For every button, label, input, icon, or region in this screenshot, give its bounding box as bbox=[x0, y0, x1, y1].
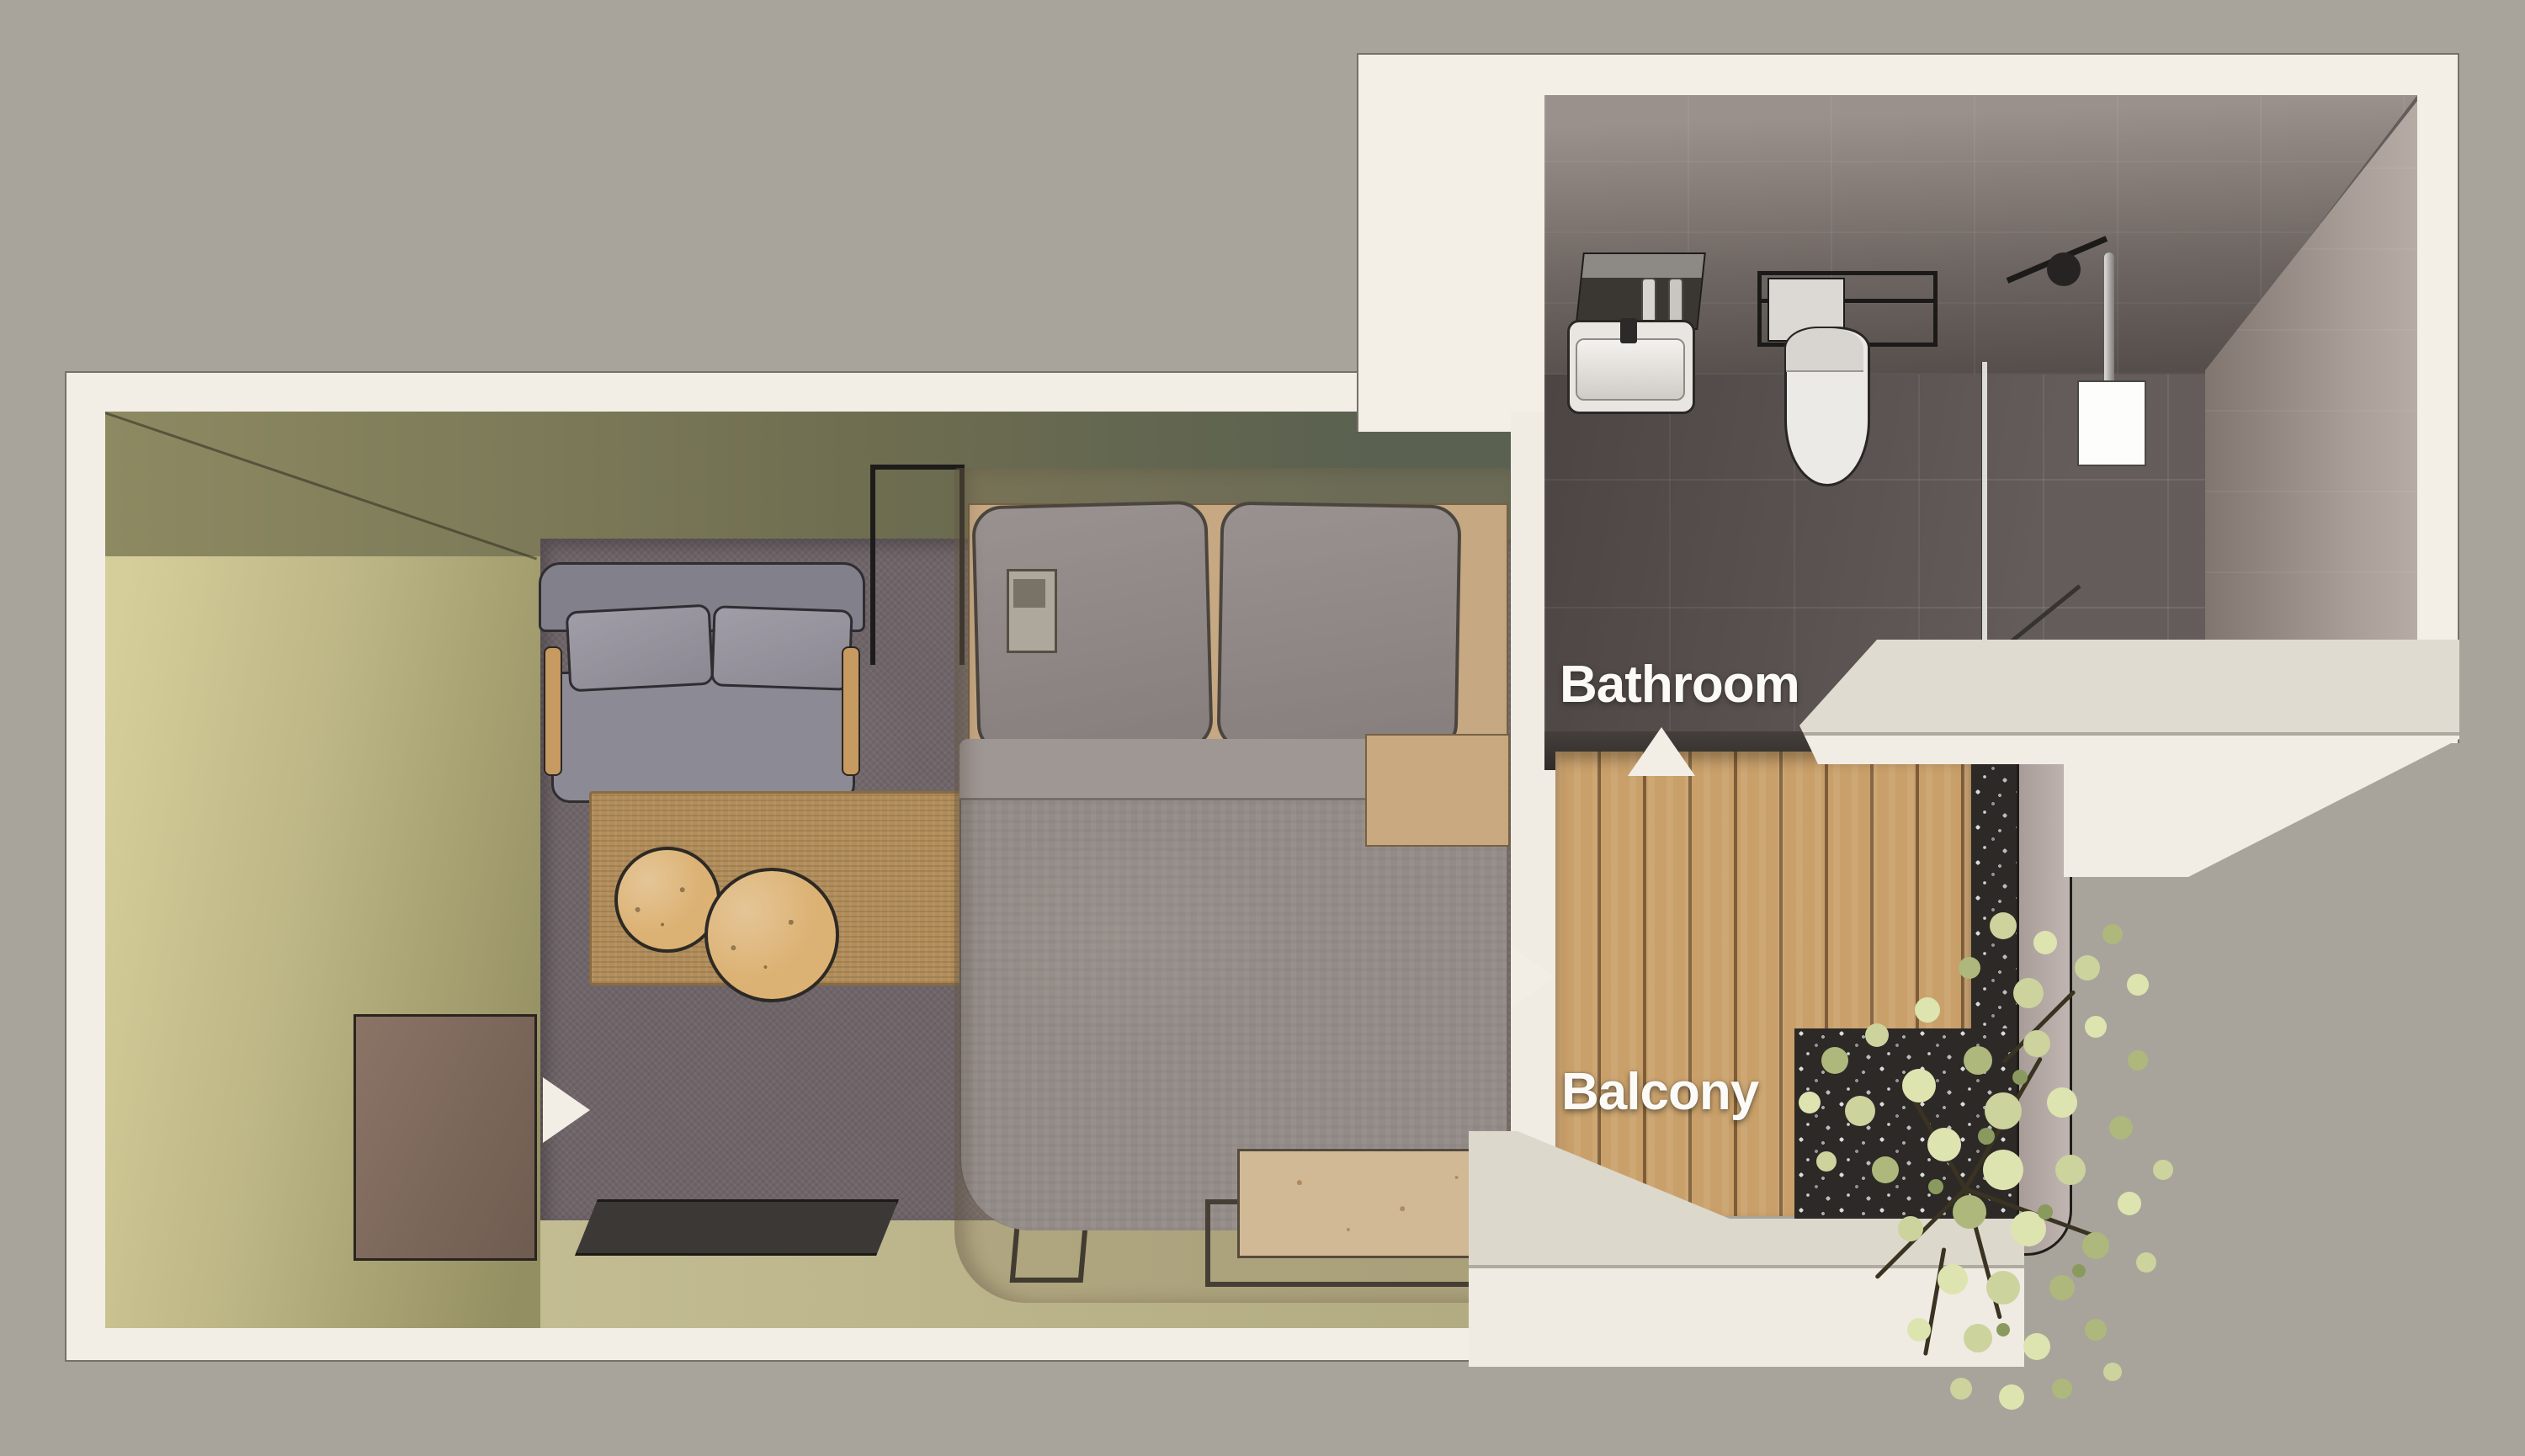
plant-leaf-cluster bbox=[2103, 1363, 2122, 1381]
doormat bbox=[575, 1199, 899, 1256]
plant-leaf-cluster bbox=[2085, 1319, 2107, 1341]
plant-leaf-cluster bbox=[2023, 1030, 2050, 1057]
plant-leaf-cluster bbox=[2085, 1016, 2107, 1038]
vanity-mirror-shelf bbox=[1575, 252, 1706, 330]
plant-leaf-cluster bbox=[1983, 1150, 2023, 1190]
plant-leaf-cluster bbox=[2055, 1155, 2086, 1185]
plant-leaf-cluster bbox=[1821, 1047, 1848, 1074]
sofa-armrest-right bbox=[842, 646, 860, 776]
plant-leaf-cluster bbox=[1990, 912, 2017, 939]
shower-niche bbox=[2077, 380, 2146, 466]
plant-leaf-cluster bbox=[2013, 978, 2044, 1008]
plant-leaf-cluster bbox=[1978, 1128, 1995, 1145]
plant-leaf-cluster bbox=[1845, 1096, 1875, 1126]
plant-leaf-cluster bbox=[1985, 1092, 2022, 1129]
plant-leaf-cluster bbox=[1964, 1324, 1992, 1352]
shower-head bbox=[2047, 252, 2081, 286]
balcony-tree-plant bbox=[1751, 892, 2188, 1431]
plant-leaf-cluster bbox=[2012, 1070, 2028, 1085]
plant-leaf-cluster bbox=[2127, 974, 2149, 996]
sofa-armrest-left bbox=[544, 646, 562, 776]
plant-leaf-cluster bbox=[1986, 1271, 2020, 1305]
plant-leaf-cluster bbox=[1799, 1092, 1821, 1113]
shower-glass-panel bbox=[1981, 362, 1987, 658]
plant-leaf-cluster bbox=[1865, 1023, 1889, 1047]
plant-leaf-cluster bbox=[2049, 1275, 2075, 1300]
slab-crease-line bbox=[1799, 732, 2461, 736]
plant-leaf-cluster bbox=[1964, 1046, 1992, 1075]
sofa-cushion-left bbox=[566, 604, 715, 693]
balcony-label: Balcony bbox=[1561, 1062, 1758, 1122]
sofa-cushion-right bbox=[710, 605, 853, 691]
plant-leaf-cluster bbox=[1938, 1264, 1968, 1294]
glass-partition-frame bbox=[870, 465, 875, 665]
plant-leaf-cluster bbox=[1898, 1216, 1923, 1241]
plant-leaf-cluster bbox=[1959, 957, 1980, 979]
plant-leaf-cluster bbox=[2128, 1050, 2148, 1071]
floorplan-scene: Bathroom Balcony bbox=[0, 0, 2525, 1456]
plant-leaf-cluster bbox=[2075, 955, 2100, 980]
plant-leaf-cluster bbox=[2109, 1116, 2133, 1140]
toiletry-bottle bbox=[1668, 278, 1683, 325]
sofa-seat bbox=[551, 672, 855, 803]
plant-leaf-cluster bbox=[2023, 1333, 2050, 1360]
toiletry-bottle bbox=[1641, 278, 1656, 325]
plant-leaf-cluster bbox=[2052, 1379, 2072, 1399]
bathroom-label: Bathroom bbox=[1560, 655, 1799, 715]
plant-leaf-cluster bbox=[1872, 1156, 1899, 1183]
plant-leaf-cluster bbox=[1928, 1179, 1943, 1194]
plant-leaf-cluster bbox=[2047, 1087, 2077, 1118]
plant-leaf-cluster bbox=[2072, 1264, 2086, 1278]
slab-top-face bbox=[1799, 640, 2461, 732]
plant-leaf-cluster bbox=[1902, 1069, 1936, 1103]
plant-leaf-cluster bbox=[2082, 1232, 2109, 1259]
entry-door-panel bbox=[353, 1014, 537, 1261]
plant-leaf-cluster bbox=[2033, 931, 2057, 954]
plant-leaf-cluster bbox=[1950, 1378, 1972, 1400]
toilet-tank bbox=[1786, 328, 1863, 372]
plant-leaf-cluster bbox=[2102, 924, 2123, 944]
plant-leaf-cluster bbox=[1999, 1384, 2024, 1410]
coffee-table-large bbox=[704, 868, 839, 1002]
plant-branch bbox=[1923, 1247, 1946, 1356]
sink-basin bbox=[1576, 338, 1685, 401]
plant-leaf-cluster bbox=[1996, 1323, 2010, 1336]
plant-leaf-cluster bbox=[2136, 1252, 2156, 1273]
glass-partition-frame bbox=[870, 465, 965, 470]
plant-leaf-cluster bbox=[1907, 1318, 1931, 1342]
sink-faucet bbox=[1620, 318, 1637, 343]
plant-leaf-cluster bbox=[1915, 997, 1940, 1023]
plant-leaf-cluster bbox=[1927, 1128, 1961, 1161]
plant-leaf-cluster bbox=[1816, 1151, 1837, 1172]
plant-leaf-cluster bbox=[2118, 1192, 2141, 1215]
bed-glass-enclosure bbox=[954, 468, 1510, 1303]
plant-leaf-cluster bbox=[2038, 1204, 2053, 1220]
plant-leaf-cluster bbox=[1953, 1195, 1986, 1229]
plant-leaf-cluster bbox=[2153, 1160, 2173, 1180]
